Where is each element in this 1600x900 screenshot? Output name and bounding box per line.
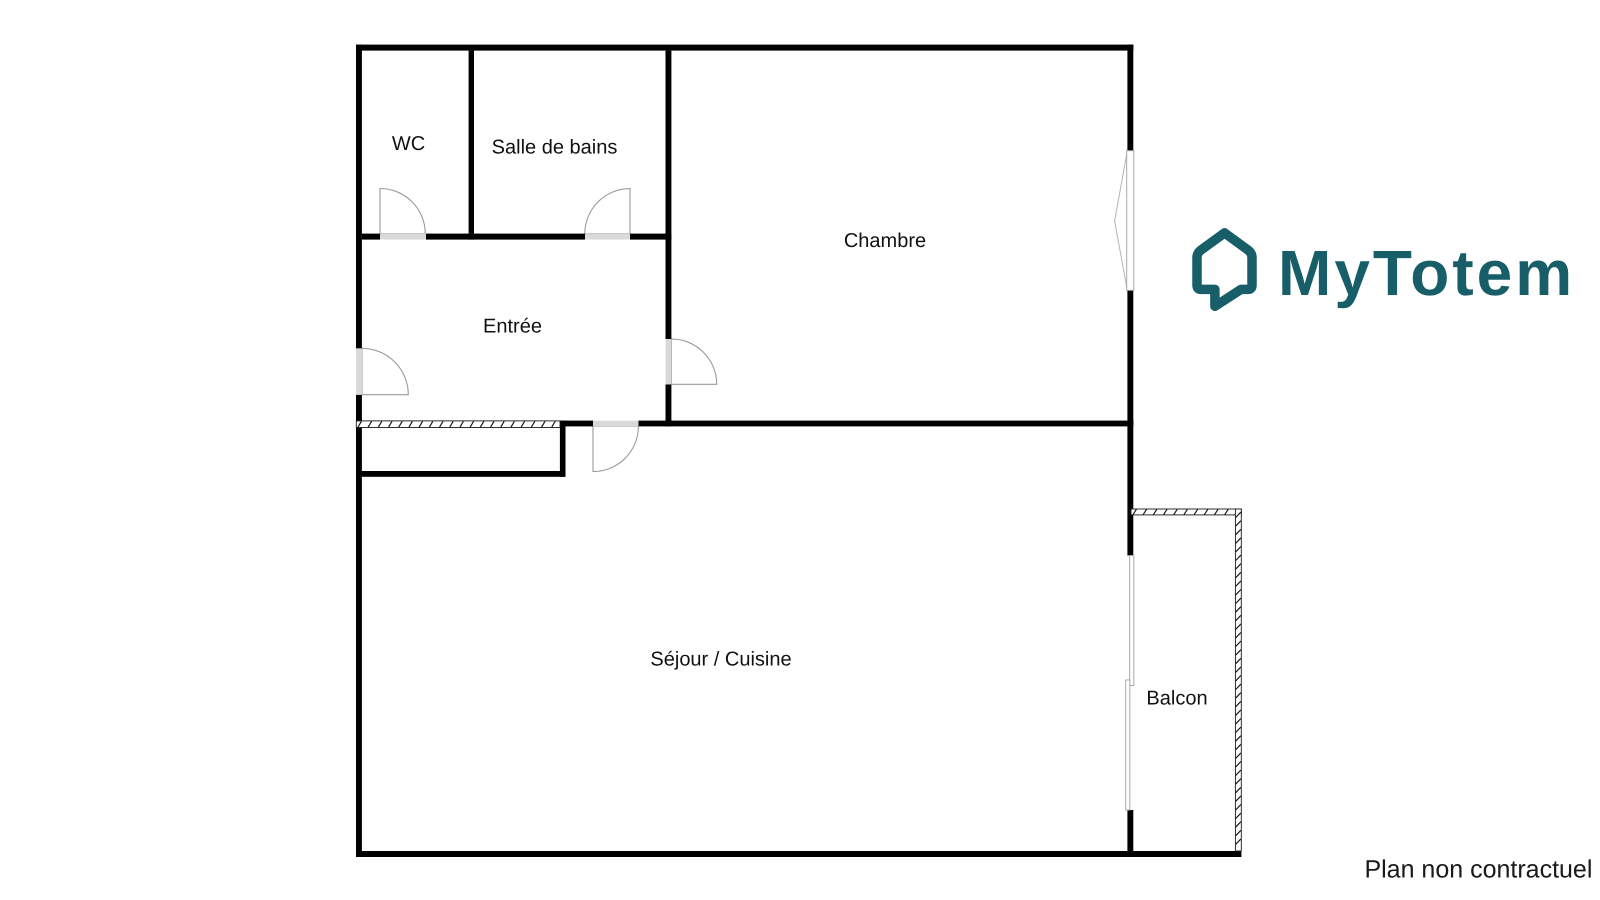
svg-text:Séjour / Cuisine: Séjour / Cuisine [650, 649, 791, 671]
svg-text:WC: WC [392, 133, 425, 155]
svg-text:Balcon: Balcon [1146, 688, 1207, 710]
svg-text:Entrée: Entrée [483, 316, 542, 338]
svg-text:MyTotem: MyTotem [1278, 237, 1575, 309]
svg-text:Salle de bains: Salle de bains [492, 137, 618, 159]
svg-text:Plan non contractuel: Plan non contractuel [1364, 856, 1592, 884]
svg-text:Chambre: Chambre [844, 230, 926, 252]
